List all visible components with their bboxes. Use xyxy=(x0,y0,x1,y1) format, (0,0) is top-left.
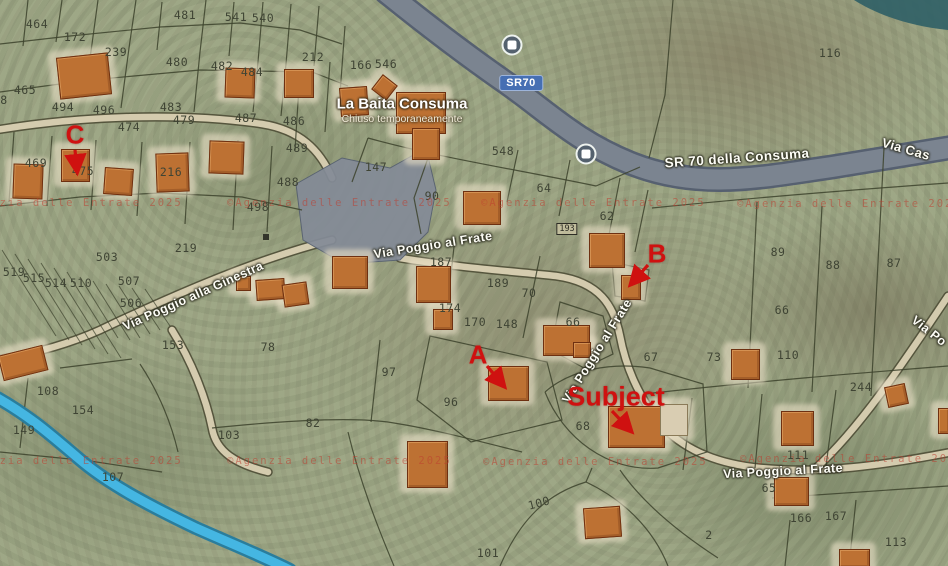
small-structure-marker xyxy=(263,234,269,240)
parcel-number: 87 xyxy=(887,256,902,270)
parcel-number: 166 xyxy=(350,58,372,72)
copyright-watermark: ©Agenzia delle Entrate 2025 xyxy=(227,197,452,209)
copyright-watermark: ©Agenzia delle Entrate 2025 xyxy=(481,197,706,209)
building xyxy=(488,366,529,401)
parcel-hatch-line xyxy=(2,250,56,336)
parcel-number: 541 xyxy=(225,10,247,24)
parcel-number: 494 xyxy=(52,100,74,114)
building xyxy=(884,383,909,408)
parcel-boundary xyxy=(140,364,178,452)
building xyxy=(56,52,112,99)
highway-sr70 xyxy=(386,0,948,179)
parcel-number: 167 xyxy=(825,509,847,523)
parcel-number: 546 xyxy=(375,57,397,71)
parcel-number: 548 xyxy=(492,144,514,158)
parcel-boundary xyxy=(0,23,342,44)
parcel-number: 8 xyxy=(0,93,7,107)
parcel-number: 489 xyxy=(286,141,308,155)
parcel-number: 65 xyxy=(762,481,777,495)
parcel-number: 212 xyxy=(302,50,324,64)
parcel-number: 73 xyxy=(707,350,722,364)
parcel-number: 107 xyxy=(102,470,124,484)
parcel-number: 515 xyxy=(23,271,45,285)
copyright-watermark: ©Agenzia delle Entrate 2025 xyxy=(0,455,183,467)
parcel-number: 487 xyxy=(235,111,257,125)
parcel-boundary xyxy=(871,148,884,396)
parcel-number: 148 xyxy=(496,317,518,331)
parcel-number: 483 xyxy=(160,100,182,114)
poi-status-label: Chiuso temporaneamente xyxy=(342,113,463,125)
stream-casing xyxy=(0,396,290,566)
parcel-number: 64 xyxy=(537,181,552,195)
parcel-number: 101 xyxy=(477,546,499,560)
cadastral-map[interactable]: 4641724815415402394802121665464824841164… xyxy=(0,0,948,566)
parcel-number: 68 xyxy=(576,419,591,433)
parcel-number: 465 xyxy=(14,83,36,97)
parcel-number: 108 xyxy=(37,384,59,398)
parcel-number: 147 xyxy=(365,160,387,174)
boxed-parcel-number: 193 xyxy=(556,223,577,235)
annotation-label-b: B xyxy=(648,239,667,270)
parcel-boundary xyxy=(620,470,718,558)
parcel-boundary xyxy=(348,432,394,566)
building xyxy=(781,411,814,446)
copyright-watermark: ©Agenzia delle Entrate 2025 xyxy=(0,197,183,209)
parcel-number: 82 xyxy=(306,416,321,430)
route-shield-sr70: SR70 xyxy=(499,75,543,91)
building xyxy=(208,140,244,174)
bus-stop-icon xyxy=(502,35,523,56)
parcel-boundary xyxy=(649,0,673,158)
parcel-number: 172 xyxy=(64,30,86,44)
building xyxy=(103,167,134,196)
building xyxy=(416,266,451,303)
building xyxy=(774,477,809,506)
parcel-number: 469 xyxy=(25,156,47,170)
parcel-number: 110 xyxy=(777,348,799,362)
parcel-number: 486 xyxy=(283,114,305,128)
parcel-number: 67 xyxy=(644,350,659,364)
parcel-number: 62 xyxy=(600,209,615,223)
parcel-number: 488 xyxy=(277,175,299,189)
parcel-number: 96 xyxy=(444,395,459,409)
parcel-number: 189 xyxy=(487,276,509,290)
parcel-number: 480 xyxy=(166,55,188,69)
bus-stop-icon xyxy=(576,144,597,165)
parcel-number: 496 xyxy=(93,103,115,117)
parcel-number: 506 xyxy=(120,296,142,310)
building xyxy=(731,349,760,380)
parcel-number: 174 xyxy=(439,301,461,315)
building xyxy=(284,69,314,98)
parcel-boundary xyxy=(212,420,522,452)
poi-label: La Baita Consuma xyxy=(337,96,468,113)
parcel-number: 66 xyxy=(775,303,790,317)
building xyxy=(583,506,622,540)
copyright-watermark: ©Agenzia delle Entrate 2025 xyxy=(740,453,948,465)
parcel-number: 153 xyxy=(162,338,184,352)
parcel-number: 219 xyxy=(175,241,197,255)
parcel-number: 2 xyxy=(705,528,712,542)
parcel-number: 482 xyxy=(211,59,233,73)
parcel-number: 89 xyxy=(771,245,786,259)
building xyxy=(412,128,440,160)
annotation-label-a: A xyxy=(469,340,488,371)
parcel-number: 66 xyxy=(566,315,581,329)
parcel-number: 154 xyxy=(72,403,94,417)
parcel-boundary xyxy=(812,206,822,392)
parcel-number: 514 xyxy=(45,276,67,290)
building xyxy=(938,408,948,434)
parcel-number: 149 xyxy=(13,423,35,437)
copyright-watermark: ©Agenzia delle Entrate 2025 xyxy=(483,456,708,468)
parcel-boundary xyxy=(157,2,162,50)
parcel-number: 78 xyxy=(261,340,276,354)
parcel-number: 97 xyxy=(382,365,397,379)
parcel-boundary xyxy=(60,359,132,368)
copyright-watermark: ©Agenzia delle Entrate 2025 xyxy=(737,198,948,210)
parcel-boundary xyxy=(267,146,272,232)
building xyxy=(255,278,285,301)
parcel-number: 216 xyxy=(160,165,182,179)
parcel-number: 507 xyxy=(118,274,140,288)
parcel-number: 475 xyxy=(72,164,94,178)
annotation-label-subject: Subject xyxy=(567,382,665,413)
parcel-number: 244 xyxy=(850,380,872,394)
parcel-number: 479 xyxy=(173,113,195,127)
building xyxy=(332,256,368,289)
parcel-number: 103 xyxy=(218,428,240,442)
parcel-boundary xyxy=(785,520,790,566)
parcel-boundary xyxy=(586,468,592,482)
building xyxy=(282,281,310,307)
parcel-number: 484 xyxy=(241,65,263,79)
water-area xyxy=(854,0,948,30)
parcel-number: 88 xyxy=(826,258,841,272)
parcel-boundary xyxy=(56,0,62,42)
parcel-number: 187 xyxy=(430,255,452,269)
parcel-number: 464 xyxy=(26,17,48,31)
parcel-number: 116 xyxy=(819,46,841,60)
parcel-number: 503 xyxy=(96,250,118,264)
parcel-number: 70 xyxy=(522,286,537,300)
parcel-boundary xyxy=(371,340,380,422)
parcel-number: 510 xyxy=(70,276,92,290)
parcel-number: 481 xyxy=(174,8,196,22)
parcel-number: 540 xyxy=(252,11,274,25)
parcel-number: 239 xyxy=(105,45,127,59)
parcel-number: 113 xyxy=(885,535,907,549)
annotation-label-c: C xyxy=(66,120,85,151)
building xyxy=(839,549,870,566)
building xyxy=(589,233,625,268)
parcel-number: 170 xyxy=(464,315,486,329)
parcel-number: 166 xyxy=(790,511,812,525)
parcel-boundary xyxy=(325,62,330,132)
parcel-number: 519 xyxy=(3,265,25,279)
parcel-number: 474 xyxy=(118,120,140,134)
minor-road xyxy=(172,330,268,472)
copyright-watermark: ©Agenzia delle Entrate 2025 xyxy=(227,455,452,467)
